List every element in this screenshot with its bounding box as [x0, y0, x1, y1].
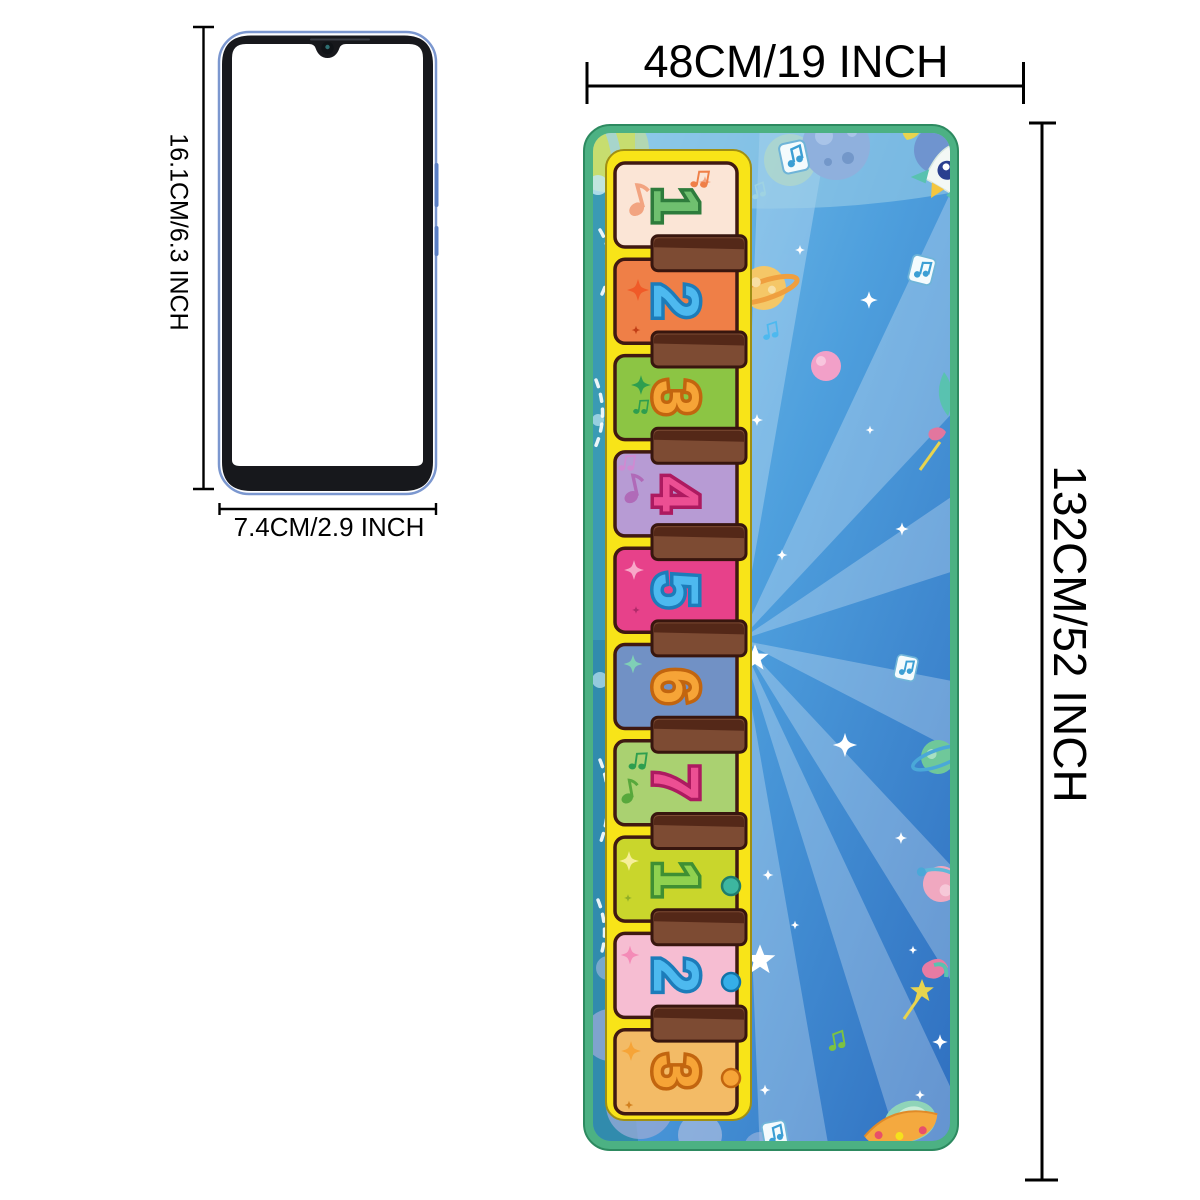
svg-text:3: 3	[640, 380, 712, 416]
svg-text:2: 2	[640, 958, 712, 994]
svg-text:1: 1	[640, 861, 712, 897]
svg-text:7: 7	[640, 765, 712, 801]
svg-text:3: 3	[640, 1054, 712, 1090]
svg-text:6: 6	[640, 669, 712, 705]
svg-text:7.4CM/2.9 INCH: 7.4CM/2.9 INCH	[234, 512, 425, 542]
svg-text:48CM/19 INCH: 48CM/19 INCH	[643, 36, 948, 87]
svg-text:16.1CM/6.3 INCH: 16.1CM/6.3 INCH	[164, 133, 192, 330]
svg-text:4: 4	[640, 476, 712, 512]
svg-text:132CM/52 INCH: 132CM/52 INCH	[1044, 465, 1096, 802]
svg-text:5: 5	[640, 572, 712, 608]
svg-text:1: 1	[640, 187, 712, 223]
svg-text:2: 2	[640, 284, 712, 320]
